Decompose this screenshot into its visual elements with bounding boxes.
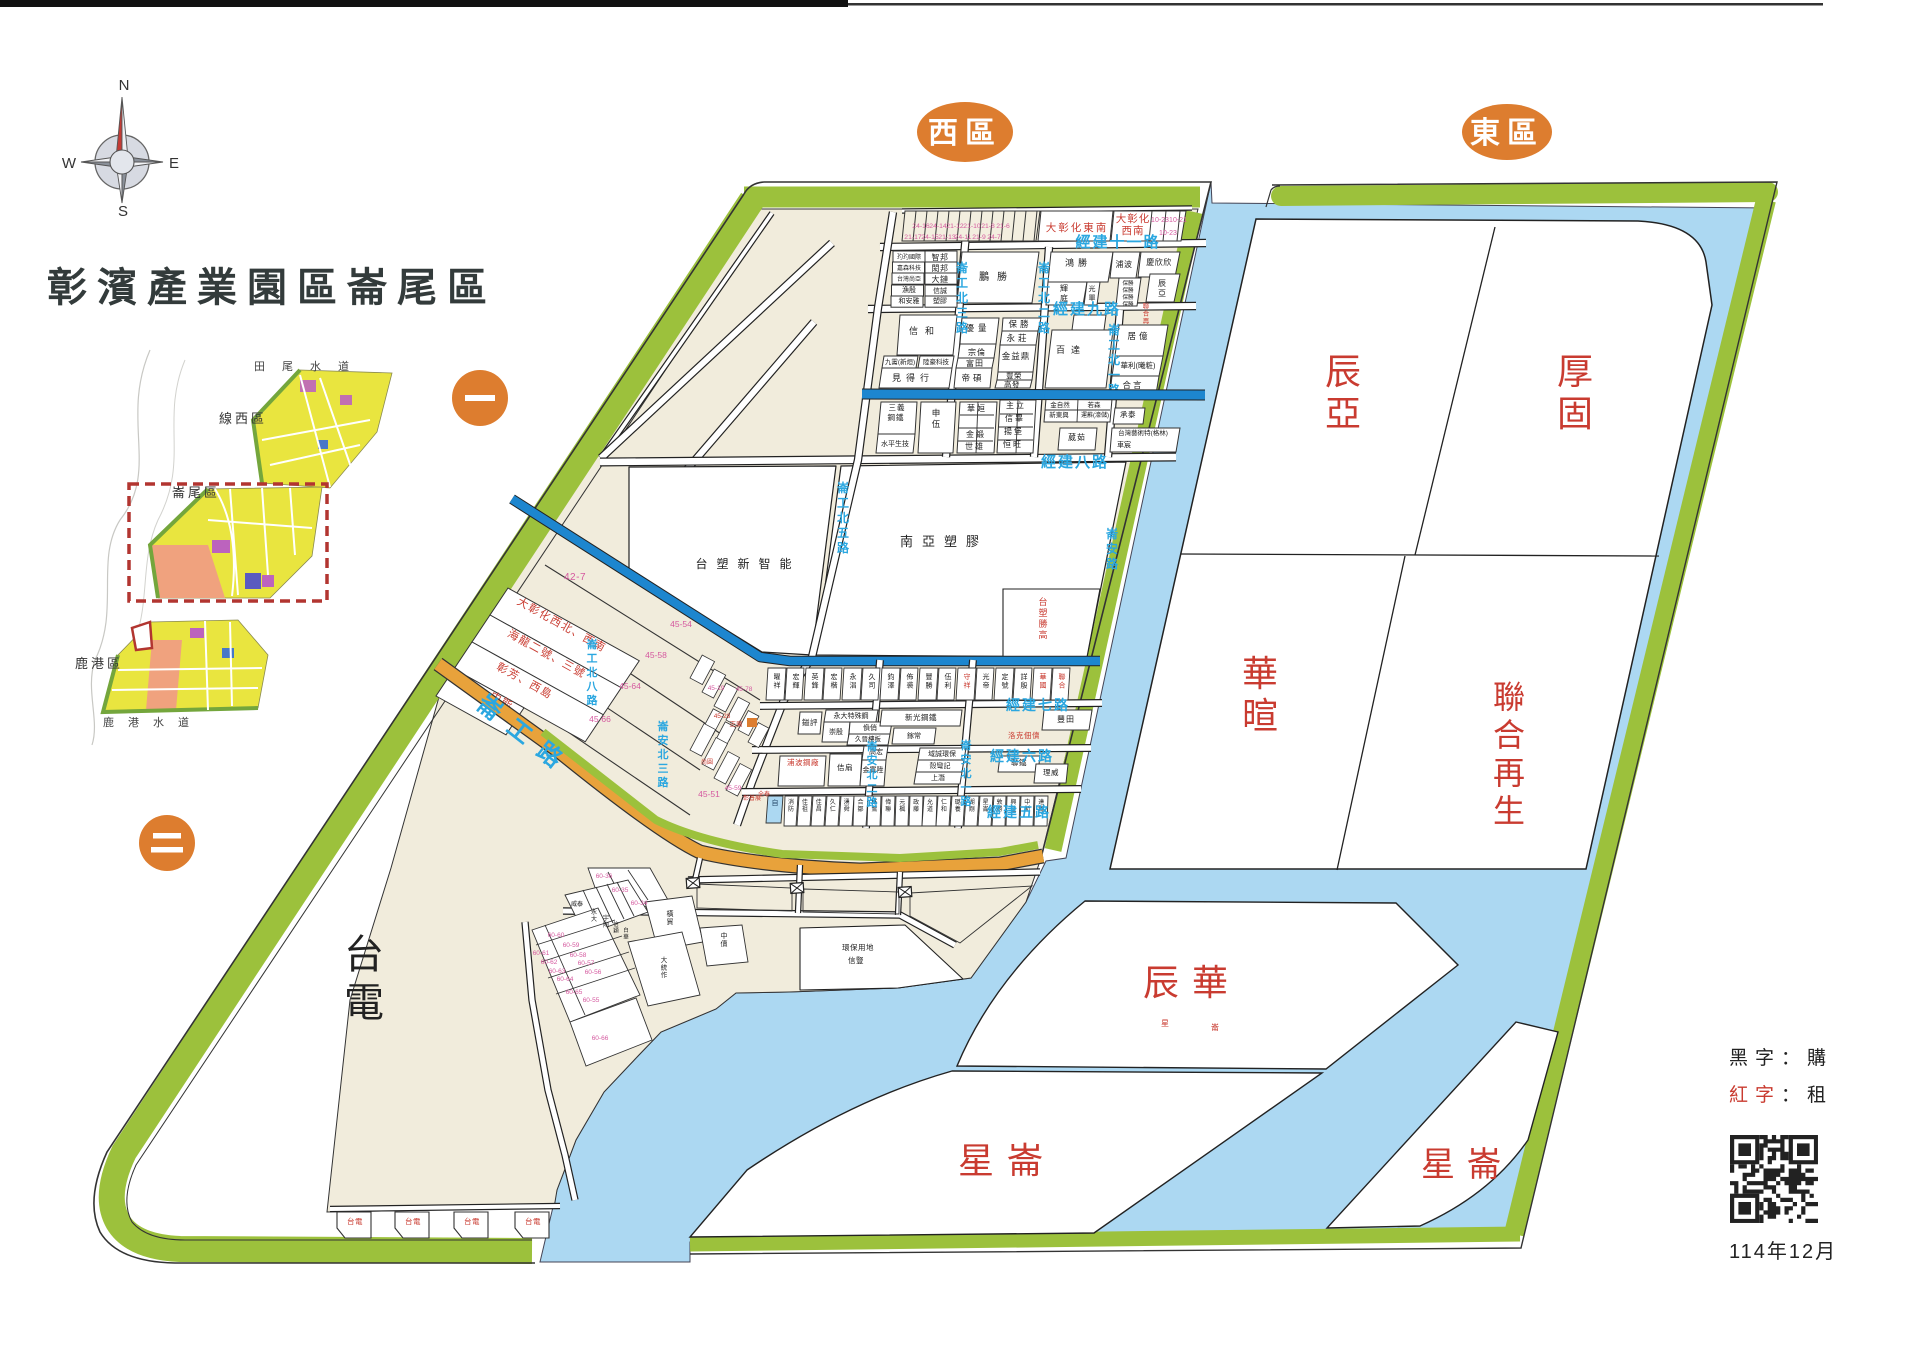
svg-text:居億: 居億 [1127,331,1150,341]
svg-text:台電: 台電 [405,1216,421,1226]
svg-text:114年12月: 114年12月 [1729,1240,1837,1263]
svg-text:辰亞: 辰亞 [1158,279,1166,298]
svg-text:洛克佃儥: 洛克佃儥 [1008,730,1040,740]
svg-text:偩俏: 偩俏 [863,723,877,732]
svg-text:崙工北三路: 崙工北三路 [955,260,969,335]
svg-text:保勝: 保勝 [1122,286,1134,294]
svg-text:伍利: 伍利 [945,672,952,690]
svg-text:崙: 崙 [1211,1022,1219,1032]
svg-text:經建七路: 經建七路 [1006,697,1070,713]
svg-text:金益鼎: 金益鼎 [1002,351,1031,361]
svg-text:華姮: 華姮 [967,403,987,413]
svg-text:台灣尚亞: 台灣尚亞 [897,275,921,283]
svg-text:三義: 三義 [889,402,906,412]
svg-text:保勝: 保勝 [1008,319,1031,329]
svg-text:60-55: 60-55 [583,997,600,1004]
svg-text:崙安路: 崙安路 [1105,526,1119,571]
svg-text:保勝: 保勝 [1122,293,1134,301]
svg-text:60-65: 60-65 [566,989,583,996]
svg-text:24-16: 24-16 [912,223,930,230]
svg-text:定號: 定號 [1002,672,1009,690]
svg-text:45-64: 45-64 [619,681,641,691]
svg-text:允道: 允道 [927,798,933,813]
svg-text:45-28: 45-28 [714,713,731,720]
svg-text:21-17: 21-17 [904,234,922,241]
svg-text:星崙: 星崙 [1421,1146,1513,1184]
svg-text:60-35: 60-35 [612,887,629,894]
svg-text:60-56: 60-56 [585,969,602,976]
svg-text:玓玓國際: 玓玓國際 [897,253,921,261]
svg-text:宏楷: 宏楷 [831,672,838,690]
svg-text:崙安北三路: 崙安北三路 [657,719,670,789]
svg-text:崙安北二路: 崙安北二路 [866,739,879,809]
svg-text:承泰: 承泰 [1120,409,1136,419]
svg-text:21-13: 21-13 [938,234,956,241]
svg-text:威泰: 威泰 [571,900,583,908]
svg-text:恒旺: 恒旺 [1003,439,1023,449]
svg-text:永淐: 永淐 [850,672,857,690]
svg-text:42-7: 42-7 [564,572,586,583]
svg-text:厚固: 厚固 [1557,351,1593,434]
svg-text:台灣藝術特(格林): 台灣藝術特(格林) [1118,428,1168,437]
svg-text:信豎: 信豎 [848,955,864,965]
svg-text:永大: 永大 [591,908,597,923]
svg-text:45-78: 45-78 [736,686,753,693]
svg-text:大統作: 大統作 [661,955,668,979]
svg-text:台電: 台電 [525,1216,541,1226]
svg-text:鴻勝: 鴻勝 [1065,257,1091,268]
svg-text:W: W [62,155,77,172]
svg-text:和安雅: 和安雅 [899,296,920,305]
svg-text:60-58: 60-58 [570,952,587,959]
svg-text:閎邦: 閎邦 [932,263,949,273]
svg-text:西區: 西區 [928,117,1002,150]
svg-text:申伍: 申伍 [932,408,941,429]
svg-text:紅字：租: 紅字：租 [1729,1084,1833,1106]
svg-text:田尾水道: 田尾水道 [254,359,366,373]
svg-text:崙工北五路: 崙工北五路 [836,480,850,555]
svg-text:車宸: 車宸 [1117,440,1131,449]
svg-text:豐榮: 豐榮 [1006,370,1022,380]
svg-text:10-23: 10-23 [1159,230,1177,237]
svg-text:保勝: 保勝 [1122,300,1134,308]
svg-text:大彰化: 大彰化 [1116,212,1151,225]
svg-text:合言: 合言 [1122,380,1143,390]
svg-text:詳殷: 詳殷 [1021,672,1028,690]
svg-text:台電: 台電 [464,1216,480,1226]
svg-text:東區: 東區 [1470,117,1544,150]
svg-text:信誠: 信誠 [933,286,947,295]
svg-text:尚圓: 尚圓 [701,758,713,766]
svg-text:理威: 理威 [1043,767,1059,777]
svg-text:台電: 台電 [347,1216,363,1226]
svg-text:陸豪科技: 陸豪科技 [923,357,950,366]
svg-text:宇陶: 宇陶 [603,914,609,929]
svg-text:佈裘: 佈裘 [907,672,914,690]
svg-text:新東興: 新東興 [1049,410,1069,419]
svg-text:24-7: 24-7 [987,234,1001,241]
svg-text:水平生技: 水平生技 [881,439,909,448]
svg-text:60-61: 60-61 [533,950,550,957]
svg-text:60-57: 60-57 [578,960,595,967]
svg-text:全泰: 全泰 [758,790,770,798]
svg-text:佳昌: 佳昌 [816,798,822,813]
svg-text:崙工北二路: 崙工北二路 [1037,260,1051,335]
svg-text:信畢: 信畢 [1005,413,1025,423]
svg-text:崇殷: 崇殷 [829,727,843,736]
svg-text:永莊: 永莊 [1006,333,1029,343]
svg-text:華利(曦粧): 華利(曦粧) [1121,360,1156,370]
svg-text:優量: 優量 [965,323,990,333]
svg-text:浦波鋼廠: 浦波鋼廠 [787,757,819,767]
svg-text:鈞澤: 鈞澤 [888,672,895,690]
svg-text:信穎: 信穎 [613,920,619,935]
svg-text:宏輝: 宏輝 [793,672,800,690]
svg-text:佶扇: 佶扇 [837,762,853,772]
svg-text:60-60: 60-60 [548,932,565,939]
svg-text:世雄: 世雄 [965,441,985,451]
svg-text:45-59: 45-59 [725,785,742,792]
svg-text:域誠環保: 域誠環保 [928,749,956,758]
svg-text:24-15: 24-15 [921,234,939,241]
svg-text:經建五路: 經建五路 [987,804,1051,820]
svg-text:聯合: 聯合 [1059,672,1066,690]
svg-text:60-36: 60-36 [596,873,613,880]
svg-text:豐勝: 豐勝 [926,672,933,690]
svg-text:湧舜: 湧舜 [844,798,850,813]
svg-text:漁殷: 漁殷 [902,285,916,294]
svg-text:揚堡: 揚堡 [1004,426,1024,436]
svg-text:經建十一路: 經建十一路 [1075,233,1160,251]
svg-text:經建九路: 經建九路 [1053,300,1121,318]
svg-text:政藤: 政藤 [913,798,919,813]
svg-text:智邦: 智邦 [932,252,949,262]
svg-text:葳茹: 葳茹 [1068,432,1086,442]
svg-text:偉聯: 偉聯 [885,798,891,813]
svg-text:鵬勝: 鵬勝 [979,270,1015,283]
svg-text:21-8: 21-8 [981,223,995,230]
svg-text:10-23: 10-23 [1151,217,1169,224]
svg-text:豐田: 豐田 [1057,714,1075,724]
svg-text:新光鋼鐵: 新光鋼鐵 [905,712,937,722]
svg-text:守祥: 守祥 [964,672,971,690]
svg-text:殼彎記: 殼彎記 [930,761,951,770]
svg-text:24-11: 24-11 [955,234,972,241]
svg-text:宗倫: 宗倫 [968,347,986,357]
svg-text:帝碩: 帝碩 [961,373,984,383]
svg-text:信和: 信和 [909,325,941,336]
svg-text:大鏈: 大鏈 [932,274,949,284]
svg-text:合鄒: 合鄒 [857,798,863,813]
svg-text:45-58: 45-58 [645,650,667,660]
svg-text:華暄: 華暄 [1242,653,1278,736]
svg-text:英鋒: 英鋒 [812,672,819,690]
svg-text:保勝: 保勝 [1122,279,1134,287]
svg-text:自: 自 [772,798,779,807]
svg-text:崙安北一路: 崙安北一路 [960,738,973,808]
svg-text:黑字：購: 黑字：購 [1729,1047,1833,1069]
svg-text:S: S [118,203,128,220]
svg-text:21-9: 21-9 [972,234,986,241]
svg-text:正廣: 正廣 [730,719,744,728]
svg-text:白華: 白華 [623,926,629,941]
svg-text:金自然: 金自然 [1050,400,1070,409]
svg-text:E: E [169,155,179,172]
svg-text:百達: 百達 [1056,344,1086,355]
svg-text:經建六路: 經建六路 [990,748,1054,764]
svg-text:久司: 久司 [869,672,876,690]
svg-text:辰亞: 辰亞 [1325,351,1361,434]
svg-text:浦波: 浦波 [1116,259,1133,269]
svg-text:10-21: 10-21 [1169,217,1187,224]
svg-text:線西區: 線西區 [219,411,267,426]
svg-text:環保用地: 環保用地 [842,942,874,952]
svg-text:鎰評: 鎰評 [802,717,818,727]
svg-text:運蔛(濠儲): 運蔛(濠儲) [1081,411,1109,419]
svg-text:星崙: 星崙 [958,1140,1056,1181]
svg-text:高發: 高發 [1004,379,1020,389]
svg-text:45-51: 45-51 [698,789,720,799]
svg-text:21-6: 21-6 [996,223,1010,230]
svg-text:橫貿: 橫貿 [667,909,674,926]
svg-text:60-66: 60-66 [592,1035,609,1042]
svg-text:上潛: 上潛 [931,773,945,782]
svg-text:南亞塑膠: 南亞塑膠 [900,534,988,549]
svg-text:塑膠: 塑膠 [933,296,947,305]
svg-text:45-66: 45-66 [589,714,611,724]
svg-text:台塑新智能: 台塑新智能 [695,556,800,571]
svg-text:鹿港區: 鹿港區 [75,656,123,671]
svg-text:仁和: 仁和 [941,798,947,813]
svg-text:見得行: 見得行 [892,372,934,383]
svg-text:崙工北一路: 崙工北一路 [1107,322,1121,397]
svg-text:光帝: 光帝 [983,672,990,690]
svg-text:若森: 若森 [1088,400,1102,409]
svg-text:鋼鐵: 鋼鐵 [888,412,905,422]
svg-text:60-59: 60-59 [563,942,580,949]
svg-text:經建八路: 經建八路 [1041,453,1109,471]
svg-text:富田: 富田 [966,358,984,368]
svg-text:華國: 華國 [1040,672,1047,690]
svg-text:久仁: 久仁 [830,798,836,813]
svg-text:鹿港水道: 鹿港水道 [103,715,203,729]
svg-text:佳祖: 佳祖 [802,798,808,813]
svg-text:消防: 消防 [788,798,794,813]
svg-text:21-12: 21-12 [946,223,964,230]
svg-text:星: 星 [1161,1019,1169,1028]
svg-text:九霱(新烜): 九霱(新烜) [885,357,915,366]
svg-text:N: N [119,77,130,94]
svg-text:金鍛: 金鍛 [966,429,986,439]
svg-text:45-54: 45-54 [670,619,692,629]
svg-text:60-34: 60-34 [631,900,648,907]
svg-text:大彰化東南: 大彰化東南 [1046,221,1109,234]
svg-text:主立: 主立 [1006,400,1026,410]
svg-text:彰濱產業園區崙尾區: 彰濱產業園區崙尾區 [47,266,497,310]
svg-text:崙尾區: 崙尾區 [172,485,220,500]
svg-text:21-10: 21-10 [963,223,981,230]
svg-text:永大特殊鋼: 永大特殊鋼 [834,711,869,720]
svg-text:60-62: 60-62 [541,959,558,966]
svg-text:崙工北八路: 崙工北八路 [586,637,599,707]
svg-text:45-19: 45-19 [708,685,725,692]
svg-text:24-14: 24-14 [929,223,947,230]
svg-text:60-64: 60-64 [557,976,574,983]
svg-text:60-63: 60-63 [549,968,566,975]
svg-text:慶欣欣: 慶欣欣 [1146,257,1172,267]
svg-text:中儥: 中儥 [721,931,728,948]
svg-text:辰華: 辰華 [1143,962,1241,1003]
svg-text:嘉森科技: 嘉森科技 [897,264,921,272]
svg-text:鎵常: 鎵常 [907,731,921,740]
